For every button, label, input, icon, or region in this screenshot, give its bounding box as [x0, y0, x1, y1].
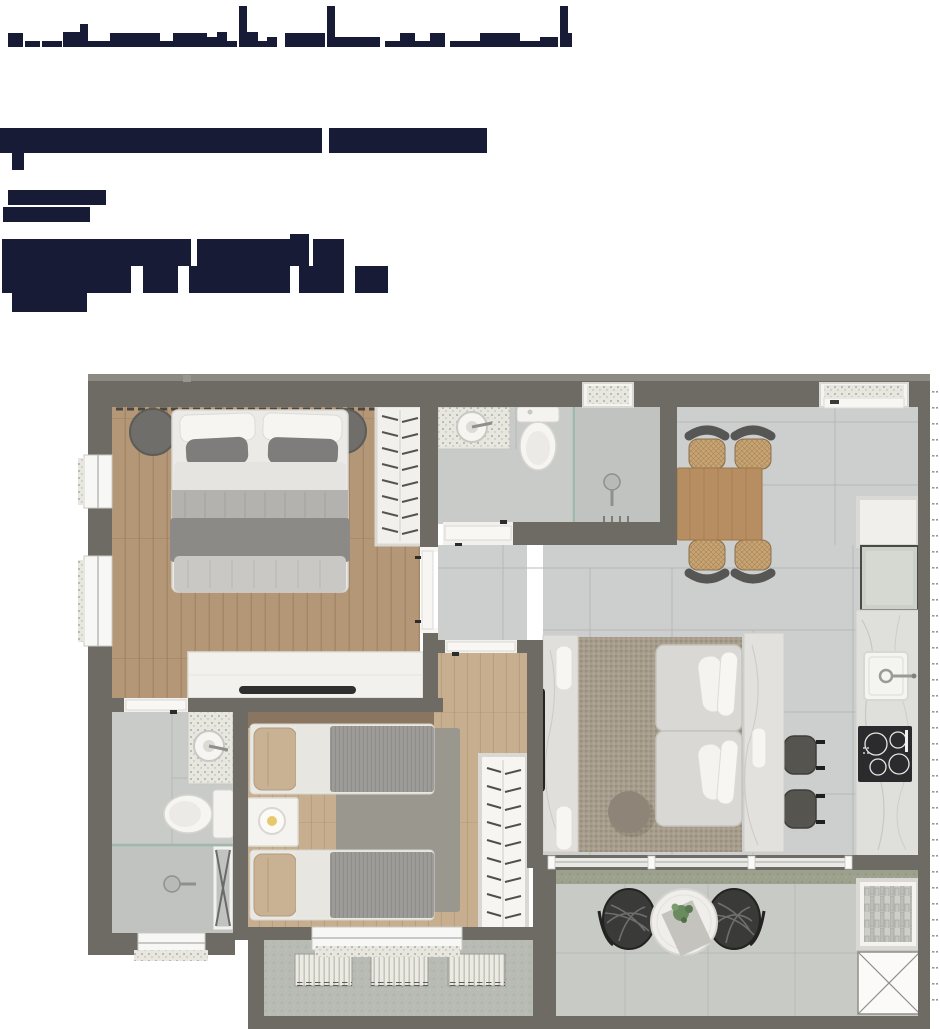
entry-door-top: [820, 383, 908, 408]
title-top-cropped: [8, 6, 572, 47]
tv: [239, 686, 356, 694]
single-bed-2: [250, 850, 434, 920]
living-room: [536, 633, 784, 852]
pouf: [608, 791, 650, 833]
louver-unit: [448, 954, 505, 986]
single-bed-1: [250, 724, 434, 794]
big-heading-block: [2, 234, 388, 312]
window-left-2: [78, 556, 112, 646]
small-label: [3, 190, 106, 222]
bedroom2-nook-floor: [438, 653, 527, 713]
window-bedroom2: [312, 927, 462, 957]
sofa-back-console: [744, 633, 784, 852]
open-shelf: [858, 498, 918, 546]
bath1-toilet: [517, 407, 559, 470]
subtitle-bar: [0, 128, 487, 170]
sofa: [656, 645, 742, 826]
tv-console: [543, 635, 578, 852]
louver-unit: [295, 954, 352, 986]
cooktop: [858, 726, 912, 782]
nightstand: [248, 798, 298, 846]
open-wardrobe: [376, 406, 424, 545]
appliance: [861, 546, 918, 610]
round-table: [651, 889, 717, 956]
right-ruler-ticks: [932, 386, 938, 1010]
bathroom1-door: [443, 520, 513, 546]
wall-cap: [88, 374, 930, 382]
text-blocks: [0, 6, 572, 312]
double-bed: [170, 410, 350, 592]
planter-niche: [858, 880, 918, 948]
open-wardrobe-2: [480, 755, 527, 933]
shaft-x-box: [858, 952, 920, 1014]
window-left-1: [78, 455, 112, 508]
bathroom2-door: [124, 698, 188, 714]
hall-floor: [438, 545, 527, 640]
louver-unit: [371, 954, 428, 986]
dresser: [188, 652, 423, 698]
window-bathroom2: [134, 933, 208, 961]
dining-area: [677, 430, 771, 579]
dining-table: [677, 468, 762, 540]
ottoman-left: [130, 409, 176, 455]
niche-top: [583, 383, 633, 407]
service-area: [295, 954, 505, 986]
kitchen-sink: [864, 652, 917, 700]
bathroom1-shower-floor: [576, 407, 660, 524]
floor-plan: [78, 374, 938, 1029]
floorplan-page: [0, 0, 940, 1029]
